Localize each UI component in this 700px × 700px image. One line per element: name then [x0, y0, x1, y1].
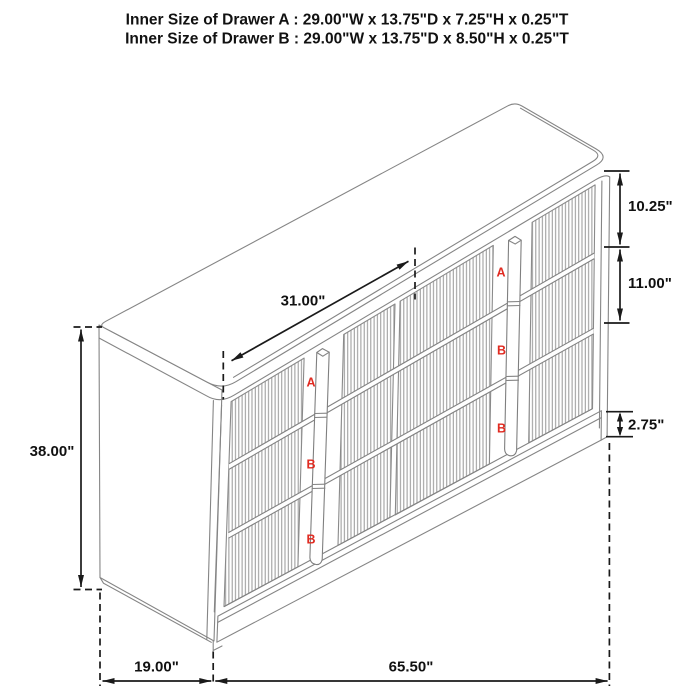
base-dim-label: 2.75" [628, 417, 664, 434]
drawer-label-b2-right: B [497, 422, 506, 436]
drawer-label-a-left: A [306, 376, 315, 390]
fluted-panel-2 [338, 304, 395, 545]
cabinet-drawing: A B B A B B [99, 104, 610, 651]
dimension-top-drawer-height: 10.25" [604, 171, 673, 247]
title-line-1: Inner Size of Drawer A : 29.00"W x 13.75… [126, 12, 569, 29]
fluted-panel-1 [224, 358, 304, 606]
diagram-canvas: A B B A B B 38.00" 31.00" 10.25 [0, 0, 700, 700]
diagram-title: Inner Size of Drawer A : 29.00"W x 13.75… [125, 12, 569, 48]
drawer-label-a-right: A [496, 266, 505, 280]
dimension-overall-height: 38.00" [30, 327, 102, 590]
depth-dim-label: 19.00" [134, 659, 179, 676]
dimension-middle-drawer-height: 11.00" [604, 250, 672, 324]
title-line-2: Inner Size of Drawer B : 29.00"W x 13.75… [125, 31, 569, 48]
base-dim-arrow-down [617, 427, 623, 436]
middle-drawer-dim-label: 11.00" [628, 275, 672, 292]
left-foot [213, 641, 222, 650]
width-dim-label: 65.50" [389, 659, 434, 676]
right-stile-contour [599, 181, 602, 428]
dimension-base-height: 2.75" [606, 412, 664, 437]
base-dim-arrow-up [617, 412, 623, 421]
drawer-label-b1-right: B [497, 344, 506, 358]
top-drawer-dim-label: 10.25" [628, 198, 673, 215]
height-dim-label: 38.00" [30, 443, 75, 460]
drawer-width-dim-label: 31.00" [281, 293, 326, 310]
drawer-label-b2-left: B [306, 533, 315, 547]
furniture-dimension-diagram: A B B A B B 38.00" 31.00" 10.25 [0, 0, 700, 700]
right-handle [505, 236, 522, 455]
drawer-label-b1-left: B [306, 458, 315, 472]
fluted-panel-4 [529, 185, 595, 443]
right-stile-outer-edge [607, 177, 610, 437]
fluted-panel-3 [395, 245, 493, 515]
right-handle-body [505, 236, 522, 455]
